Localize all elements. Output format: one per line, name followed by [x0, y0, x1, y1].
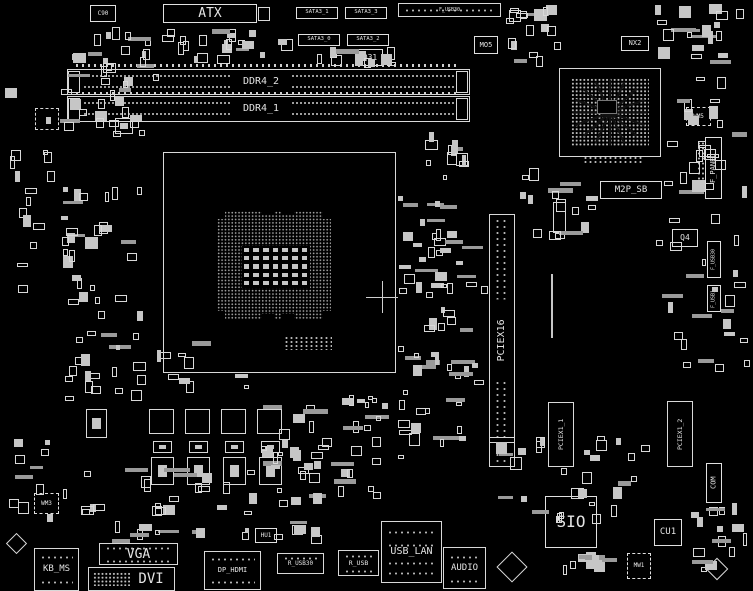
smd-component — [106, 32, 111, 39]
label-mw1: MW1 — [627, 553, 651, 579]
smd-component — [592, 514, 601, 524]
port-label-r-usb30-port: R_USB30 — [281, 560, 320, 568]
port-label-kb-ms-port: KB_MS — [38, 564, 75, 575]
slot-label-ddr4-2-slot: DDR4_2 — [232, 75, 290, 89]
smd-component — [314, 461, 321, 469]
smd-component — [88, 52, 102, 56]
smd-component — [398, 455, 404, 459]
smd-component — [399, 288, 407, 294]
cpu-cap — [292, 273, 298, 277]
cpu-cap — [302, 281, 308, 285]
cpu-cap — [263, 273, 269, 277]
smd-component — [740, 338, 748, 343]
label-f-usb30-header: F_USB30 — [707, 241, 721, 278]
smd-component — [180, 36, 186, 45]
smd-component — [709, 106, 718, 119]
smd-component — [294, 525, 303, 535]
smd-component — [133, 468, 148, 472]
smd-component — [712, 287, 718, 292]
smd-component — [279, 500, 288, 507]
smd-component — [516, 13, 528, 18]
smd-component — [706, 508, 725, 511]
smd-component — [115, 521, 120, 533]
smd-component — [290, 521, 307, 524]
smd-component — [592, 555, 599, 562]
smd-component — [447, 231, 457, 238]
smd-component — [416, 282, 422, 293]
smd-component — [244, 511, 252, 515]
smd-component — [533, 229, 542, 238]
cpu-cap — [282, 281, 288, 285]
smd-component — [668, 302, 673, 313]
smd-component — [322, 438, 332, 447]
cpu-cap — [282, 248, 288, 252]
smd-component — [212, 29, 230, 34]
label-com-header: COM — [706, 463, 722, 503]
smd-component — [63, 249, 68, 256]
cpu-cap — [263, 256, 269, 260]
smd-component — [45, 440, 50, 445]
smd-component — [723, 319, 731, 329]
smd-component — [403, 203, 418, 207]
smd-component — [115, 96, 124, 106]
smd-component — [242, 532, 249, 540]
smd-component — [133, 333, 139, 340]
cpu-cap — [253, 264, 259, 268]
smd-component — [498, 496, 513, 499]
smd-component — [271, 465, 280, 469]
smd-component — [414, 353, 419, 358]
slot-label-pciex1-2-slot: PCIEX1_2 — [673, 405, 688, 463]
smd-component — [724, 332, 735, 336]
smd-component — [424, 325, 435, 332]
smd-component — [578, 489, 587, 498]
port-pins — [387, 561, 436, 566]
smd-component — [662, 294, 683, 298]
smd-component — [131, 390, 142, 401]
smd-component — [536, 437, 545, 448]
smd-component — [194, 56, 198, 63]
smd-component — [101, 333, 117, 337]
port-pins — [40, 580, 73, 585]
smd-component — [734, 235, 739, 246]
smd-component — [33, 223, 45, 230]
cpu-cap — [273, 281, 279, 285]
smd-component — [613, 487, 622, 499]
smd-component — [112, 187, 118, 200]
smd-component — [429, 132, 434, 142]
smd-component — [155, 507, 166, 515]
smd-component — [15, 455, 25, 464]
smd-component — [552, 191, 559, 199]
smd-component — [109, 345, 131, 349]
smd-component — [273, 452, 278, 464]
smd-component — [202, 473, 212, 483]
smd-component — [670, 242, 682, 251]
smd-component — [245, 528, 249, 533]
smd-component — [692, 45, 704, 51]
smd-component — [466, 282, 477, 287]
smd-component — [457, 426, 462, 434]
smd-component — [427, 219, 445, 222]
smd-component — [72, 275, 81, 281]
cpu-socket-notch — [217, 311, 225, 319]
smd-component — [716, 11, 728, 20]
smd-component — [416, 408, 426, 415]
smd-component — [708, 31, 713, 44]
smd-component — [663, 29, 674, 41]
cpu-socket-notch — [323, 211, 331, 219]
label-sata3-0: SATA3_0 — [298, 34, 340, 46]
cpu-cap — [282, 256, 288, 260]
smd-component — [47, 514, 53, 522]
component-inner — [231, 445, 239, 450]
smd-component — [112, 27, 120, 40]
smd-component — [457, 275, 476, 278]
smd-component — [704, 149, 716, 160]
smd-component — [63, 489, 67, 499]
smd-component — [311, 452, 323, 459]
smd-component — [691, 54, 702, 59]
label-sata3-1: SATA3_1 — [296, 7, 338, 19]
port-pins — [93, 572, 130, 586]
smd-component — [563, 565, 567, 575]
smd-component — [611, 505, 617, 517]
smd-component — [197, 53, 208, 63]
smd-component — [732, 132, 747, 137]
smd-component — [355, 54, 363, 66]
smd-component — [440, 248, 451, 253]
smd-component — [61, 89, 72, 95]
smd-component — [179, 378, 190, 384]
smd-component — [93, 504, 105, 511]
label-wm3: WM3 — [34, 493, 59, 514]
smd-component — [570, 561, 576, 569]
smd-component — [106, 64, 112, 71]
smd-component — [18, 502, 29, 514]
label-sata3-2: SATA3_2 — [347, 34, 389, 46]
smd-component — [721, 309, 734, 313]
smd-component — [79, 109, 87, 116]
smd-component — [79, 292, 88, 302]
smd-component — [313, 493, 322, 504]
cpu-socket-notch — [262, 314, 274, 320]
smd-component — [244, 385, 249, 389]
smd-component — [715, 160, 726, 170]
cpu-cap — [253, 281, 259, 285]
smd-component — [526, 25, 534, 36]
smd-component — [94, 225, 102, 236]
smd-component — [112, 367, 117, 377]
smd-component — [139, 524, 152, 531]
smd-component — [681, 339, 687, 350]
port-label-dp-hdmi-port: DP_HDMI — [208, 566, 257, 575]
smd-component — [372, 458, 381, 465]
smd-component — [11, 150, 21, 161]
smd-component — [447, 152, 457, 165]
smd-component — [157, 350, 161, 362]
smd-component — [144, 479, 151, 492]
smd-component — [528, 195, 533, 204]
cpu-cap — [302, 273, 308, 277]
cpu-cap — [292, 256, 298, 260]
smd-component — [403, 232, 413, 241]
smd-component — [529, 168, 539, 181]
slot-label-ddr4-1-slot: DDR4_1 — [232, 102, 290, 116]
smd-component — [460, 328, 473, 332]
pin-tick-row — [76, 64, 460, 67]
smd-component — [25, 188, 37, 194]
label-m2p-sb: M2P_SB — [600, 181, 662, 199]
smd-component — [549, 231, 561, 240]
cpu-socket-notch — [262, 209, 274, 215]
smd-component — [98, 311, 105, 319]
smd-component — [459, 436, 466, 441]
smd-component — [26, 197, 31, 206]
port-label-audio-port: AUDIO — [447, 563, 482, 574]
port-pins — [387, 571, 436, 576]
smd-component — [311, 527, 320, 537]
cpu-cap — [292, 281, 298, 285]
cpu-cap — [263, 281, 269, 285]
component-rect — [221, 409, 246, 434]
cpu-cap — [244, 264, 250, 268]
smd-component — [518, 448, 526, 455]
component-rect — [185, 409, 210, 434]
component-inner — [230, 465, 239, 476]
smd-component — [398, 346, 404, 352]
smd-component — [710, 60, 731, 64]
smd-component — [702, 259, 706, 266]
smd-component — [139, 130, 145, 136]
smd-component — [667, 141, 678, 147]
crosshair-v — [382, 281, 383, 313]
smd-component — [688, 116, 699, 125]
smd-component — [628, 453, 635, 461]
cpu-cap — [292, 248, 298, 252]
smd-component — [733, 270, 738, 277]
smd-component — [17, 263, 28, 267]
smd-component — [712, 539, 731, 543]
smd-component — [522, 175, 529, 180]
smd-component — [372, 437, 381, 447]
cpu-cap — [244, 273, 250, 277]
smd-component — [137, 375, 146, 385]
smd-component — [436, 229, 441, 241]
component-rect — [149, 409, 174, 434]
smd-component — [559, 231, 583, 235]
slot-label-pciex1-1-slot: PCIEX1_1 — [554, 406, 569, 463]
smd-component — [696, 150, 703, 162]
component-inner — [120, 123, 127, 129]
smd-component — [143, 49, 150, 60]
smd-component — [428, 247, 435, 258]
smd-component — [398, 420, 410, 428]
smd-component — [399, 400, 405, 410]
smd-component — [223, 482, 230, 494]
smd-component — [334, 479, 356, 484]
cpu-socket-notch — [217, 211, 225, 219]
smd-component — [96, 118, 104, 128]
smd-component — [101, 78, 110, 85]
cpu-cap — [263, 264, 269, 268]
smd-component — [235, 374, 248, 378]
smd-component — [293, 414, 305, 423]
smd-component — [399, 265, 411, 269]
smd-component — [153, 74, 159, 81]
smd-component — [130, 115, 142, 121]
smd-component — [247, 470, 255, 475]
smd-component — [15, 475, 33, 479]
smd-component — [121, 46, 130, 55]
smd-component — [249, 493, 257, 504]
smd-component — [561, 468, 567, 475]
smd-component — [736, 9, 744, 19]
smd-component — [330, 47, 336, 57]
smd-component — [658, 47, 670, 59]
smd-component — [263, 405, 282, 409]
smd-component — [85, 381, 93, 393]
smd-component — [85, 371, 91, 381]
smd-component — [426, 160, 431, 166]
label-c90: C90 — [90, 5, 116, 22]
smd-component — [717, 77, 726, 89]
smd-component — [459, 161, 469, 167]
smd-component — [278, 39, 287, 45]
smd-component — [158, 530, 179, 533]
smd-component — [409, 433, 420, 446]
smd-component — [588, 205, 596, 210]
smd-component — [303, 409, 328, 414]
smd-component — [376, 416, 381, 421]
smd-component — [590, 455, 600, 461]
smd-component — [81, 506, 94, 515]
smd-component — [226, 39, 232, 50]
port-label-vga-port: VGA — [103, 547, 174, 562]
smd-component — [697, 517, 703, 527]
smd-component — [217, 505, 227, 510]
smd-component — [616, 438, 621, 445]
smd-component — [692, 560, 713, 564]
smd-component — [556, 199, 566, 212]
smd-component — [249, 30, 256, 37]
cpu-cap — [273, 248, 279, 252]
cpu-cap — [273, 273, 279, 277]
smd-component — [547, 26, 556, 36]
port-label-usb-lan-port: USB_LAN — [385, 546, 438, 558]
cpu-cap — [292, 264, 298, 268]
cpu-cap — [244, 248, 250, 252]
cpu-cap — [282, 264, 288, 268]
smd-component — [162, 35, 174, 42]
smd-component — [743, 533, 747, 546]
smd-component — [419, 257, 426, 262]
smd-component — [155, 530, 160, 535]
smd-component — [9, 499, 19, 508]
pad-strip — [583, 156, 643, 165]
smd-component — [133, 362, 146, 371]
smd-component — [596, 440, 607, 451]
smd-component — [169, 496, 179, 502]
smd-component — [689, 162, 700, 174]
smd-component — [556, 516, 560, 523]
smd-component — [664, 181, 673, 186]
smd-component — [692, 180, 705, 192]
smd-component — [128, 37, 151, 41]
component-rect — [456, 98, 468, 120]
smd-component — [692, 314, 712, 318]
smd-component — [217, 55, 230, 64]
smd-component — [125, 32, 131, 40]
smd-component — [433, 436, 459, 440]
smd-component — [90, 373, 100, 379]
smd-component — [115, 388, 123, 394]
smd-component — [76, 337, 83, 343]
smd-component — [443, 175, 447, 180]
smd-component — [69, 366, 77, 376]
smd-component — [343, 426, 363, 430]
smd-component — [382, 403, 388, 409]
smd-component — [68, 74, 90, 77]
label-mo5: MO5 — [474, 36, 498, 54]
smd-component — [447, 283, 453, 294]
smd-component — [582, 472, 592, 484]
label-nx2: NX2 — [621, 36, 649, 51]
smd-component — [41, 449, 49, 456]
smd-component — [404, 274, 415, 284]
smd-component — [65, 396, 74, 401]
smd-component — [15, 171, 20, 182]
smd-component — [657, 20, 667, 25]
port-pins — [40, 555, 73, 560]
smd-component — [472, 363, 478, 368]
port-label-dvi-port: DVI — [127, 571, 175, 587]
smd-component — [631, 476, 637, 482]
smd-component — [440, 439, 444, 447]
smd-component — [715, 364, 724, 372]
smd-component — [368, 59, 375, 67]
chipset-core — [597, 100, 617, 114]
port-label-f-usb30-top: F_USB30 — [402, 7, 497, 14]
smd-component — [282, 439, 288, 448]
smd-component — [447, 364, 452, 371]
smd-component — [381, 54, 392, 65]
smd-component — [732, 503, 737, 515]
smd-component — [87, 331, 96, 336]
smd-component — [521, 496, 527, 502]
smd-component — [63, 201, 83, 204]
smd-component — [164, 468, 190, 472]
cpu-socket-notch — [282, 314, 294, 320]
smd-component — [116, 345, 120, 350]
smd-component — [112, 539, 130, 543]
smd-component — [441, 284, 447, 288]
smd-component — [435, 354, 439, 365]
smd-component — [710, 99, 720, 103]
smd-component — [95, 297, 100, 304]
smd-component — [123, 81, 128, 88]
smd-component — [30, 466, 43, 469]
smd-component — [30, 242, 37, 249]
smd-component — [357, 399, 365, 403]
smd-component — [293, 450, 301, 461]
smd-component — [85, 237, 98, 249]
port-pins — [449, 579, 480, 584]
smd-component — [69, 250, 75, 262]
smd-component — [347, 469, 353, 478]
smd-component — [68, 299, 79, 305]
cpu-cap — [282, 273, 288, 277]
